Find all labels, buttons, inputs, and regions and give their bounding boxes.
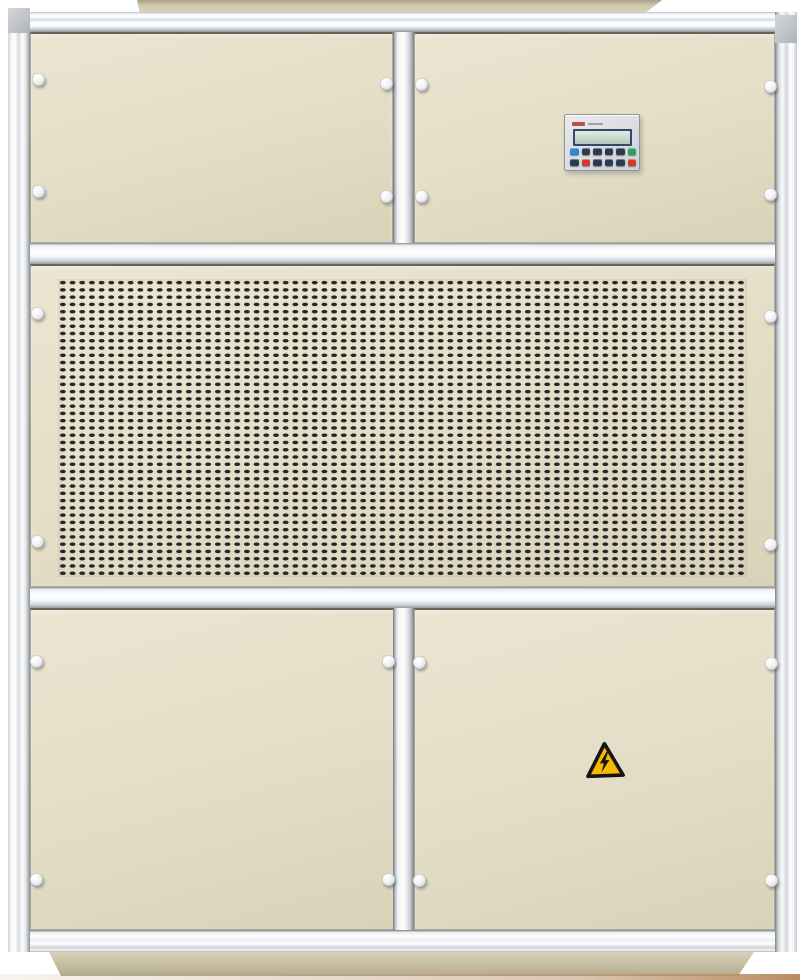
floor-reflection — [0, 974, 800, 980]
frame-mullion-top — [393, 32, 414, 243]
keypad-button-dark — [582, 148, 591, 155]
panel-knob — [31, 307, 44, 320]
panel-knob — [415, 190, 428, 203]
keypad-button-blue — [570, 148, 579, 155]
panel-knob — [30, 655, 43, 668]
keypad-row — [570, 148, 637, 155]
keypad-button-dark — [593, 148, 602, 155]
frame-mullion-bottom — [393, 608, 414, 930]
base-plinth — [46, 952, 754, 976]
bottom-left-door — [30, 608, 394, 930]
panel-knob — [765, 657, 778, 670]
top-right-panel — [414, 32, 775, 243]
frame-rail-top — [8, 12, 797, 32]
keypad-button-red — [628, 159, 637, 166]
controller-panel — [564, 114, 640, 171]
keypad-button-red — [582, 159, 591, 166]
keypad-button-dark — [616, 159, 625, 166]
panel-knob — [764, 188, 777, 201]
panel-knob — [31, 535, 44, 548]
frame-rail-right — [775, 12, 797, 952]
keypad-button-dark — [570, 159, 579, 166]
panel-knob — [413, 874, 426, 887]
panel-knob — [765, 874, 778, 887]
keypad-row — [570, 159, 637, 166]
panel-knob — [380, 77, 393, 90]
frame-rail-bottom — [8, 930, 797, 952]
panel-knob — [415, 78, 428, 91]
controller-brand-logo — [572, 122, 585, 126]
controller-brand-subtext — [588, 123, 603, 125]
equipment-photo — [0, 0, 800, 980]
frame-rail-left — [8, 12, 30, 952]
high-voltage-warning-icon — [584, 737, 626, 783]
keypad-button-dark — [605, 148, 614, 155]
corner-bracket-top-right — [775, 15, 797, 43]
cabinet-unit — [8, 12, 797, 952]
panel-knob — [764, 538, 777, 551]
bottom-right-door — [414, 608, 775, 930]
panel-knob — [32, 73, 45, 86]
panel-knob — [764, 80, 777, 93]
lcd-display — [573, 129, 632, 146]
keypad-button-dark — [593, 159, 602, 166]
grille-perforations — [58, 279, 747, 577]
frame-rail-lower-middle — [30, 587, 775, 608]
panel-knob — [32, 185, 45, 198]
ventilation-grille-panel — [30, 264, 775, 587]
panel-knob — [382, 655, 395, 668]
lcd-screen — [575, 131, 630, 144]
corner-bracket-top-left — [8, 8, 30, 33]
keypad-button-dark — [605, 159, 614, 166]
keypad-button-dark — [616, 148, 625, 155]
panel-knob — [30, 873, 43, 886]
panel-knob — [382, 873, 395, 886]
panel-knob — [413, 656, 426, 669]
panel-knob — [380, 190, 393, 203]
controller-keypad — [570, 148, 637, 169]
frame-rail-upper-middle — [30, 243, 775, 264]
top-left-panel — [30, 32, 393, 243]
keypad-button-green — [628, 148, 637, 155]
panel-knob — [764, 310, 777, 323]
